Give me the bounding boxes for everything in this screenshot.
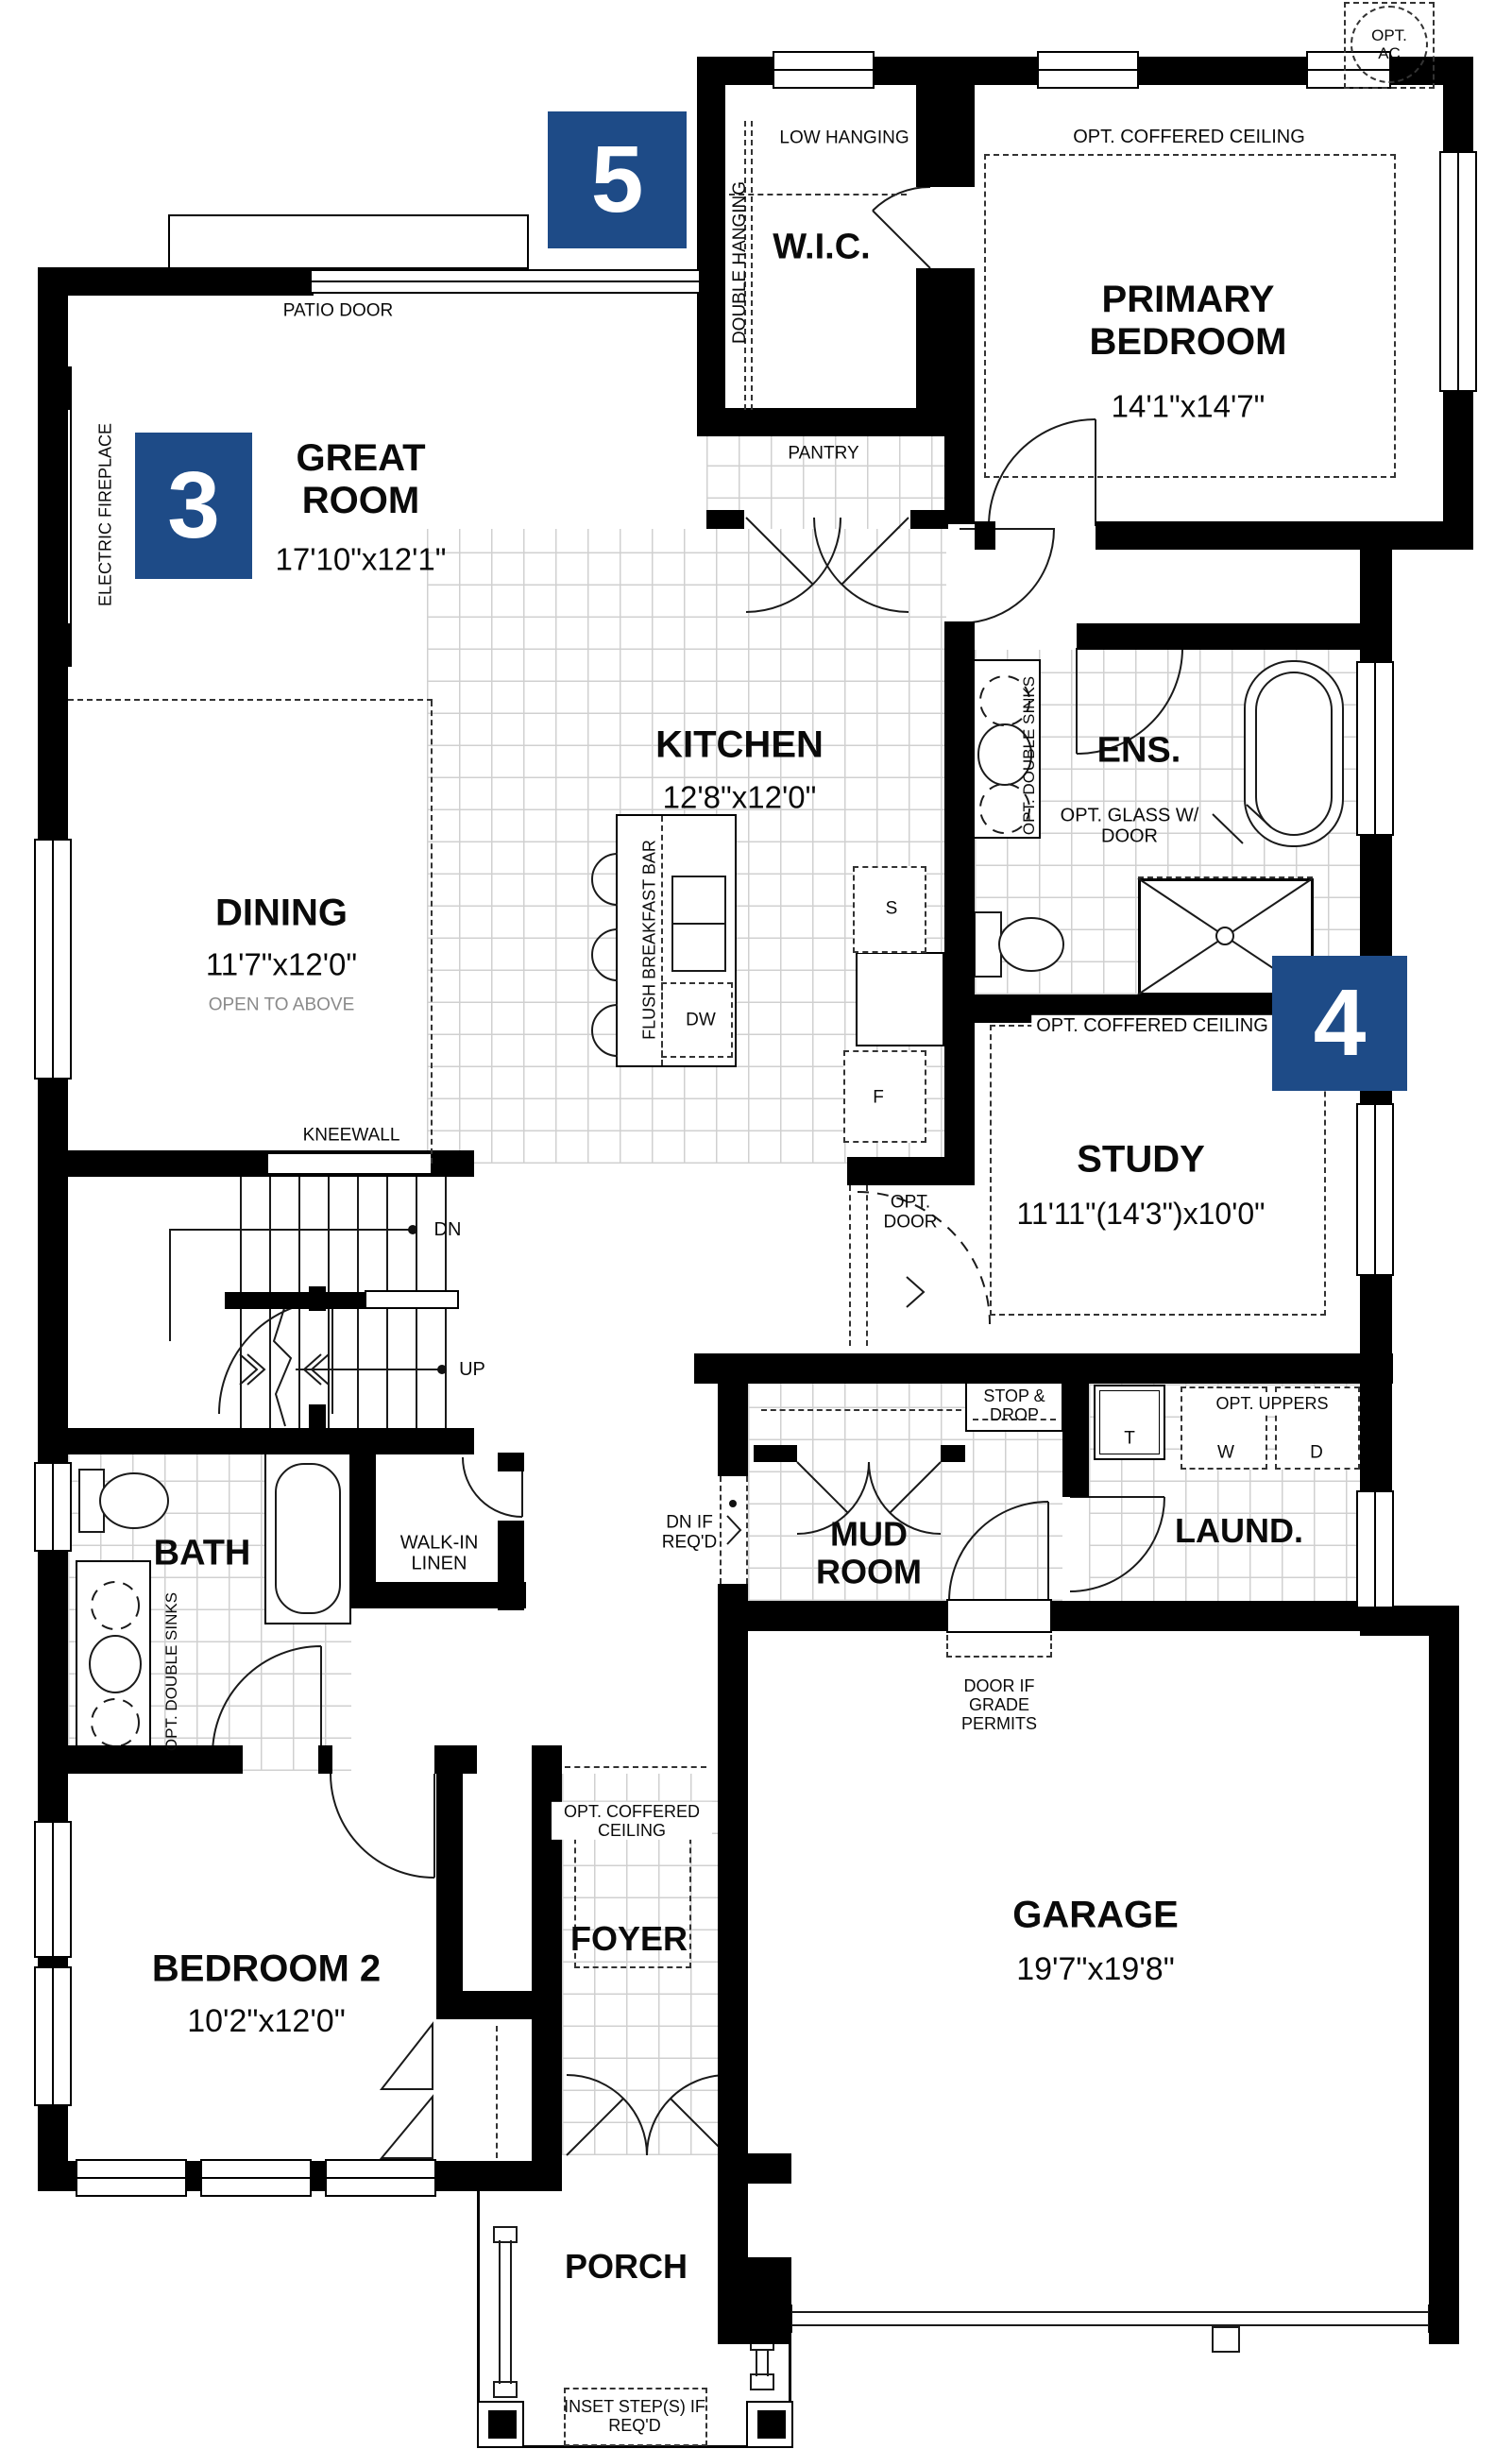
- great-room-dims: 17'10"x12'1": [275, 543, 446, 578]
- window: [1356, 661, 1394, 836]
- bath-sink-bottom: [92, 1699, 139, 1746]
- wall: [38, 1428, 474, 1454]
- mud-closet-stub-right: [941, 1445, 965, 1462]
- wall: [1077, 623, 1362, 650]
- opt-door-jamb-a: [849, 1185, 851, 1346]
- primary-dims: 14'1"x14'7": [1112, 390, 1266, 425]
- wall: [436, 1745, 463, 1993]
- patio-deck: [168, 214, 529, 269]
- kneewall-label: KNEEWALL: [303, 1125, 400, 1145]
- study-coffered-label: OPT. COFFERED CEILING: [1031, 1015, 1273, 1036]
- island-sink: [672, 876, 725, 971]
- kitchen-hall-door-arc: [960, 529, 1054, 623]
- window: [1037, 51, 1139, 89]
- wall: [697, 408, 975, 436]
- inset-steps-label: INSET STEP(S) IF REQ'D: [554, 2397, 715, 2435]
- dn-if-reqd-label: DN IF REQ'D: [647, 1513, 732, 1554]
- kitchen-name: KITCHEN: [655, 724, 824, 767]
- optional-door-chevron: [907, 1277, 924, 1307]
- bifold-doors: [382, 2024, 433, 2158]
- opt-door-label: OPT. DOOR: [873, 1193, 948, 1233]
- window: [1356, 1490, 1394, 1608]
- wall: [944, 408, 975, 524]
- window: [76, 2159, 187, 2197]
- wall: [944, 621, 975, 1185]
- opt-uppers-label: OPT. UPPERS: [1211, 1394, 1333, 1413]
- laundry-name: LAUND.: [1175, 1512, 1303, 1550]
- foyer-coffered-label: OPT. COFFERED CEILING: [552, 1802, 712, 1840]
- bath-toilet-bowl: [100, 1473, 168, 1528]
- shower-drain: [1216, 927, 1233, 944]
- pantry-label: PANTRY: [788, 443, 858, 463]
- marker-4: 4: [1272, 956, 1407, 1091]
- shower-glass: [1138, 876, 1313, 878]
- linen-name: WALK-IN LINEN: [382, 1533, 496, 1575]
- laundry-door-arc: [1070, 1497, 1164, 1591]
- closet-rod: [496, 2026, 498, 2158]
- opt-door-jamb-b: [866, 1185, 868, 1346]
- bath-sink-mid: [90, 1636, 141, 1692]
- patio-door-label: PATIO DOOR: [283, 300, 393, 320]
- window: [34, 1821, 72, 1958]
- mud-closet-rod: [761, 1409, 961, 1411]
- washer-label: W: [1217, 1442, 1234, 1462]
- front-double-doors: [567, 2075, 727, 2155]
- dn-leader: [170, 1230, 413, 1341]
- marker-5: 5: [548, 111, 687, 248]
- fridge-box: [843, 1050, 926, 1143]
- ens-tub-outer: [1245, 661, 1343, 846]
- kitchen-dims: 12'8"x12'0": [663, 781, 817, 816]
- window: [200, 2159, 312, 2197]
- window: [773, 51, 875, 89]
- study-name: STUDY: [1077, 1139, 1205, 1182]
- patio-door: [310, 269, 701, 294]
- bath-sink-top: [92, 1582, 139, 1629]
- wall: [720, 2257, 791, 2344]
- wall: [498, 1521, 524, 1610]
- mud-steps-dot: [729, 1500, 737, 1507]
- opt-glass-label: OPT. GLASS W/ DOOR: [1040, 806, 1219, 848]
- bedroom2-name: BEDROOM 2: [152, 1948, 381, 1991]
- island-stool-arcs: [592, 854, 618, 1056]
- mudroom-name: MUD ROOM: [789, 1516, 949, 1592]
- kitchen-dining-break: [431, 701, 433, 1164]
- porch-name: PORCH: [565, 2248, 688, 2286]
- island-counter-break: [661, 816, 663, 1065]
- wall: [916, 83, 975, 187]
- dining-name: DINING: [215, 893, 348, 935]
- fireplace-stub-bottom: [38, 623, 72, 667]
- floor-plan: OPT. AC LOW HANGING DOUBLE HANGING W.I.C…: [0, 0, 1512, 2449]
- bath-tub-inner: [276, 1464, 340, 1613]
- electric-fireplace-label: ELECTRIC FIREPLACE: [96, 423, 116, 606]
- wall: [975, 521, 995, 550]
- foyer-name: FOYER: [570, 1920, 688, 1958]
- pantry-double-doors: [746, 518, 909, 612]
- ens-toilet-tank: [975, 912, 1001, 977]
- great-room-name: GREAT ROOM: [271, 437, 450, 522]
- wall: [38, 267, 314, 296]
- foyer-hall-break: [565, 1766, 706, 1768]
- grade-door-label: DOOR IF GRADE PERMITS: [947, 1676, 1051, 1733]
- window: [1356, 1103, 1394, 1276]
- wall: [1096, 521, 1473, 550]
- wall: [718, 1601, 748, 2344]
- bedroom2-dims: 10'2"x12'0": [187, 2003, 346, 2039]
- wall: [847, 1157, 946, 1185]
- low-hanging-label: LOW HANGING: [779, 128, 909, 147]
- wall: [718, 1584, 748, 1603]
- mud-steps-jamb-b: [746, 1476, 748, 1584]
- stair-break-line: [274, 1305, 291, 1426]
- double-hanging-label: DOUBLE HANGING: [730, 181, 751, 344]
- kneewall-cap: [266, 1152, 433, 1175]
- wall: [718, 2153, 791, 2184]
- wall: [498, 1453, 524, 1471]
- window: [34, 1462, 72, 1552]
- dining-note: OPEN TO ABOVE: [209, 995, 355, 1014]
- wall: [916, 268, 975, 410]
- stair-landing-rail: [365, 1290, 459, 1309]
- bath-door-arc: [212, 1646, 321, 1755]
- ens-toilet-bowl: [999, 918, 1063, 971]
- porch-pier-left-core: [488, 2410, 517, 2439]
- wic-shelf: [729, 194, 907, 196]
- wall: [1062, 1382, 1089, 1497]
- primary-coffered-label: OPT. COFFERED CEILING: [1073, 127, 1305, 147]
- ens-double-sinks-label: OPT. DOUBLE SINKS: [1020, 676, 1039, 835]
- bath-double-sinks-label: OPT. DOUBLE SINKS: [162, 1592, 181, 1751]
- dn-label: DN: [434, 1219, 462, 1240]
- stair-jamb-bottom: [309, 1404, 326, 1428]
- garage-mud-door-arc: [949, 1502, 1048, 1601]
- garage-name: GARAGE: [1012, 1895, 1179, 1937]
- pantry-door-stub-right: [910, 510, 948, 529]
- window: [34, 839, 72, 1080]
- dining-dims: 11'7"x12'0": [206, 948, 357, 983]
- study-dims: 11'11"(14'3")x10'0": [1017, 1198, 1266, 1232]
- garage-step: [1213, 2327, 1239, 2352]
- ens-name: ENS.: [1097, 731, 1181, 772]
- wall: [748, 1601, 946, 1631]
- wall: [694, 1353, 1393, 1384]
- dw-label: DW: [686, 1010, 716, 1029]
- stove-label: S: [886, 898, 898, 918]
- bedroom2-door-arc: [331, 1774, 434, 1878]
- primary-name: PRIMARY BEDROOM: [1056, 279, 1320, 364]
- wall: [318, 1745, 332, 1774]
- up-leader-dot: [437, 1365, 447, 1374]
- grade-door-swing: [946, 1635, 1052, 1658]
- fridge-label: F: [873, 1087, 884, 1107]
- wall: [1051, 1601, 1363, 1631]
- bath-name: BATH: [154, 1534, 251, 1574]
- mud-closet-stub-left: [754, 1445, 797, 1462]
- garage-door: [791, 2304, 1429, 2333]
- fireplace-stub-top: [38, 366, 72, 410]
- marker-3: 3: [135, 433, 252, 579]
- up-label: UP: [459, 1359, 485, 1380]
- porch-pier-right-core: [757, 2410, 786, 2439]
- dn-leader-dot: [408, 1225, 417, 1234]
- grade-door: [946, 1599, 1052, 1633]
- flush-bar-label: FLUSH BREAKFAST BAR: [640, 840, 660, 1040]
- garage-dims: 19'7"x19'8": [1016, 1951, 1175, 1987]
- window: [1439, 151, 1477, 392]
- wall: [38, 1745, 243, 1774]
- opt-ac-label: OPT. AC: [1361, 26, 1418, 62]
- window: [34, 1966, 72, 2106]
- wall: [718, 1382, 748, 1476]
- stop-drop-label: STOP & DROP: [971, 1386, 1058, 1424]
- laundry-tub-label: T: [1124, 1428, 1135, 1448]
- wall: [697, 83, 725, 436]
- wic-name: W.I.C.: [773, 228, 870, 268]
- wic-door-arc: [873, 187, 930, 268]
- great-dining-break: [68, 699, 433, 701]
- pantry-door-stub-left: [706, 510, 744, 529]
- stair-landing: [225, 1292, 365, 1309]
- dryer-label: D: [1310, 1442, 1323, 1462]
- wall: [1429, 1606, 1459, 2344]
- window: [325, 2159, 436, 2197]
